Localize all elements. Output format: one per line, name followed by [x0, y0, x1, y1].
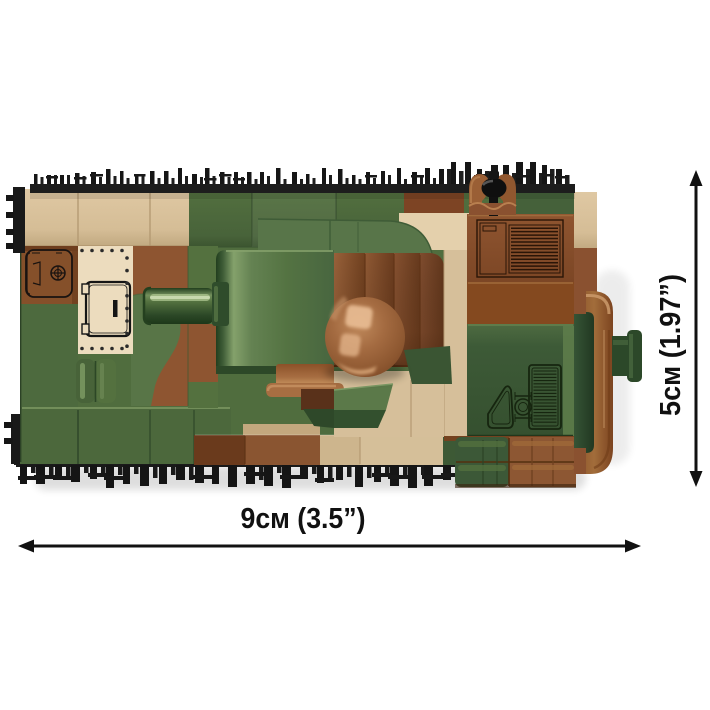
svg-text:9см (3.5”): 9см (3.5”): [241, 503, 366, 535]
svg-text:5см (1.97”): 5см (1.97”): [655, 274, 687, 416]
